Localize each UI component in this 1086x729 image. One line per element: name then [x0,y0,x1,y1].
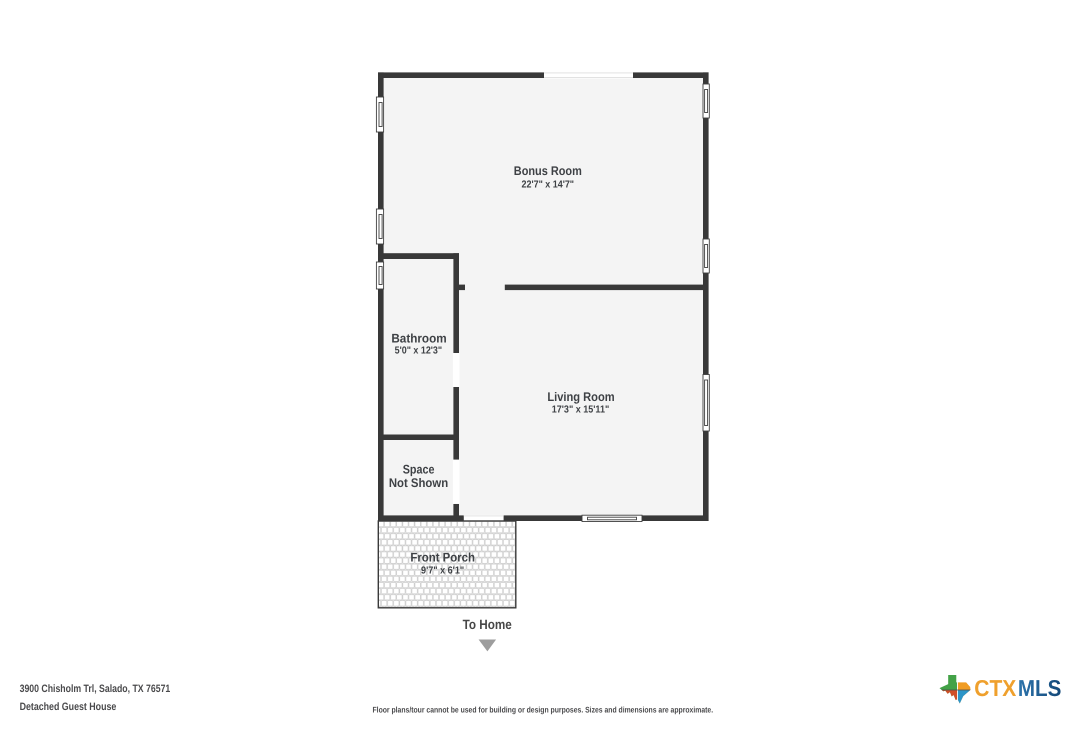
svg-text:CTX: CTX [974,675,1017,701]
svg-text:MLS: MLS [1018,675,1062,701]
svg-text:Front Porch: Front Porch [410,551,475,565]
svg-text:17'3" x 15'11": 17'3" x 15'11" [552,404,610,415]
svg-text:5'0" x 12'3": 5'0" x 12'3" [395,346,443,357]
svg-text:To Home: To Home [463,617,513,632]
svg-text:Not Shown: Not Shown [389,476,448,490]
svg-text:Space: Space [403,463,435,477]
svg-text:9'7" x 6'1": 9'7" x 6'1" [421,565,464,576]
svg-text:Floor plans/tour cannot be use: Floor plans/tour cannot be used for buil… [373,705,714,714]
svg-text:Detached Guest House: Detached Guest House [20,701,117,713]
svg-text:Bathroom: Bathroom [391,332,446,346]
svg-text:Bonus Room: Bonus Room [514,164,582,178]
svg-text:3900 Chisholm Trl, Salado, TX: 3900 Chisholm Trl, Salado, TX 76571 [20,683,171,695]
svg-text:22'7" x 14'7": 22'7" x 14'7" [522,179,575,190]
svg-text:Living Room: Living Room [547,390,614,404]
